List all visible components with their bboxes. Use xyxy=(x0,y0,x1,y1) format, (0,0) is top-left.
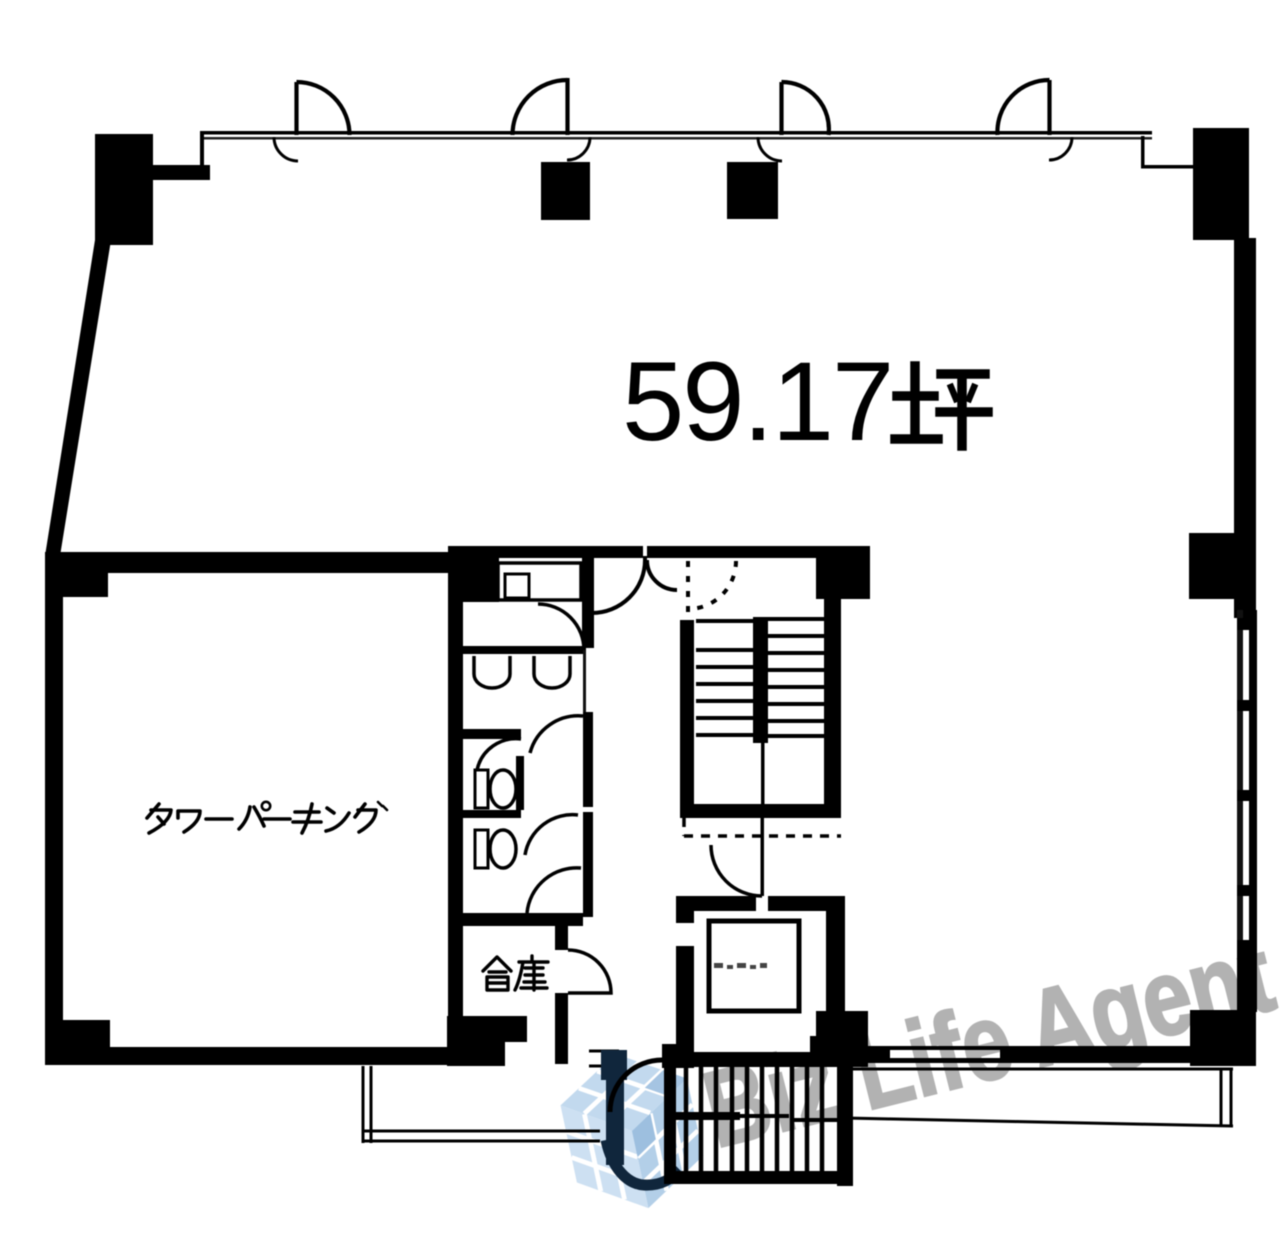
svg-text:59.17: 59.17 xyxy=(622,339,892,464)
